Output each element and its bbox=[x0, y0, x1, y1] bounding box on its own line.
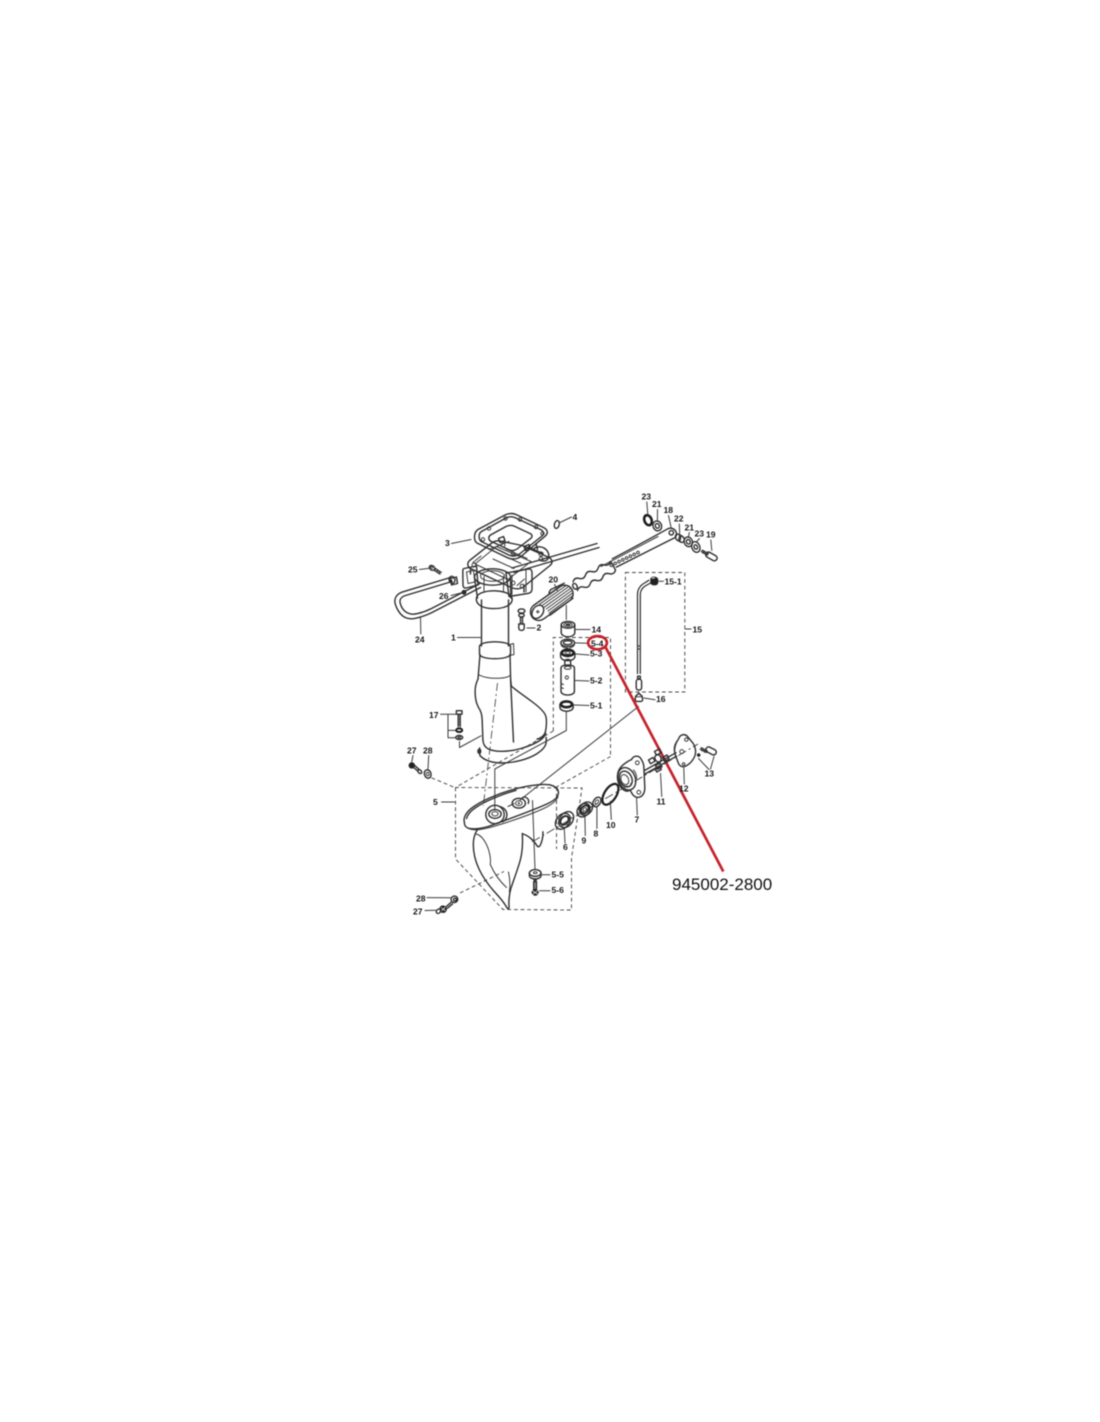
svg-text:4: 4 bbox=[573, 512, 578, 522]
svg-text:945002-2800: 945002-2800 bbox=[672, 875, 772, 894]
svg-text:21: 21 bbox=[652, 499, 662, 509]
svg-text:7: 7 bbox=[635, 815, 640, 825]
svg-text:13: 13 bbox=[705, 769, 715, 779]
svg-text:21: 21 bbox=[685, 523, 695, 533]
svg-text:15-1: 15-1 bbox=[665, 577, 682, 587]
svg-text:27: 27 bbox=[413, 907, 423, 917]
svg-text:5-2: 5-2 bbox=[590, 676, 603, 686]
svg-text:5-4: 5-4 bbox=[591, 638, 604, 648]
svg-text:2: 2 bbox=[537, 623, 542, 633]
svg-text:19: 19 bbox=[706, 530, 716, 540]
svg-text:14: 14 bbox=[592, 625, 602, 635]
svg-text:8: 8 bbox=[594, 829, 599, 839]
svg-text:6: 6 bbox=[563, 842, 568, 852]
svg-text:5: 5 bbox=[433, 797, 438, 807]
svg-text:11: 11 bbox=[657, 797, 666, 807]
svg-text:28: 28 bbox=[416, 894, 426, 904]
svg-text:25: 25 bbox=[408, 565, 418, 575]
svg-text:16: 16 bbox=[656, 694, 666, 704]
svg-text:10: 10 bbox=[606, 820, 616, 830]
svg-text:27: 27 bbox=[407, 746, 417, 756]
svg-text:15: 15 bbox=[693, 625, 703, 635]
svg-text:5-5: 5-5 bbox=[552, 870, 565, 880]
svg-text:12: 12 bbox=[679, 784, 689, 794]
svg-text:5-6: 5-6 bbox=[552, 885, 565, 895]
svg-text:9: 9 bbox=[582, 836, 587, 846]
svg-text:23: 23 bbox=[642, 492, 652, 502]
svg-text:20: 20 bbox=[549, 575, 559, 585]
svg-text:26: 26 bbox=[439, 591, 449, 601]
svg-text:28: 28 bbox=[423, 746, 433, 756]
svg-text:23: 23 bbox=[695, 529, 705, 539]
svg-text:24: 24 bbox=[415, 635, 425, 645]
svg-text:3: 3 bbox=[445, 538, 450, 548]
svg-text:18: 18 bbox=[664, 505, 674, 515]
svg-text:17: 17 bbox=[429, 710, 439, 720]
svg-text:1: 1 bbox=[451, 633, 456, 643]
svg-text:22: 22 bbox=[674, 514, 684, 524]
svg-text:5-1: 5-1 bbox=[590, 701, 603, 711]
